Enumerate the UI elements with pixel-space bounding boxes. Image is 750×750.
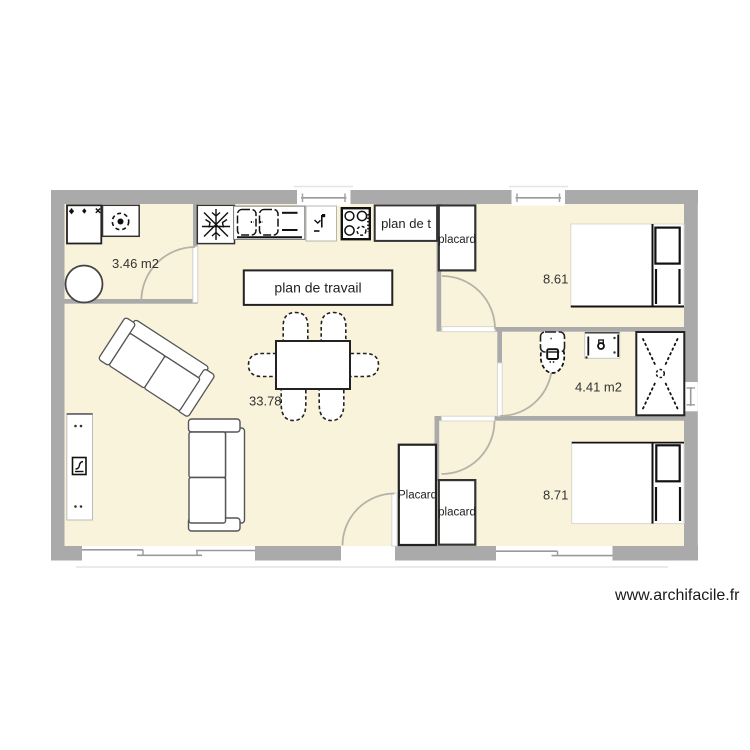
svg-text:4.41 m2: 4.41 m2 bbox=[575, 380, 622, 395]
svg-text:Placard: Placard bbox=[398, 490, 437, 502]
svg-text:plan de t: plan de t bbox=[381, 216, 431, 231]
svg-text:3.46 m2: 3.46 m2 bbox=[112, 256, 159, 271]
svg-text:www.archifacile.fr: www.archifacile.fr bbox=[614, 587, 740, 604]
svg-text:placard: placard bbox=[438, 234, 476, 246]
svg-text:placard: placard bbox=[438, 507, 476, 519]
svg-text:plan de travail: plan de travail bbox=[274, 280, 361, 296]
